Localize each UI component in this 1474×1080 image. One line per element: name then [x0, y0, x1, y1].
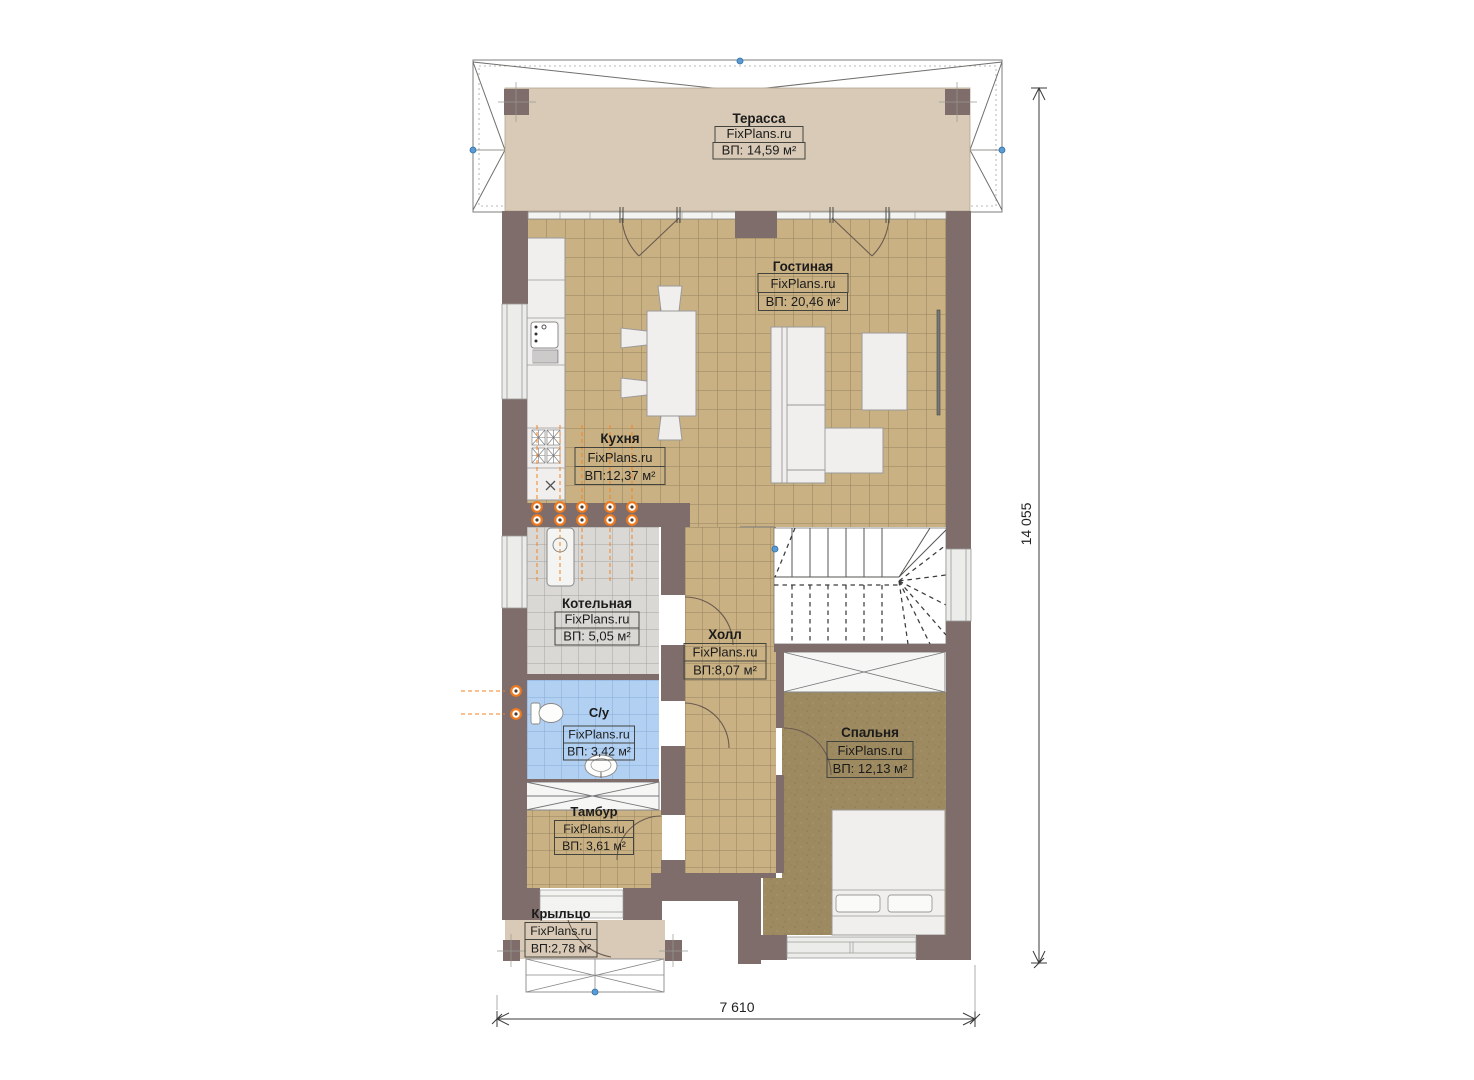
svg-text:Котельная: Котельная — [562, 596, 632, 611]
svg-text:14 055: 14 055 — [1018, 502, 1034, 545]
svg-text:FixPlans.ru: FixPlans.ru — [568, 728, 630, 742]
svg-text:FixPlans.ru: FixPlans.ru — [692, 645, 757, 660]
svg-text:ВП:8,07 м²: ВП:8,07 м² — [693, 663, 757, 678]
svg-text:ВП: 3,42 м²: ВП: 3,42 м² — [567, 745, 631, 759]
svg-text:7 610: 7 610 — [719, 999, 754, 1015]
svg-text:Гостиная: Гостиная — [773, 259, 834, 274]
svg-text:FixPlans.ru: FixPlans.ru — [563, 822, 625, 836]
svg-text:Тамбур: Тамбур — [570, 804, 617, 819]
svg-text:Холл: Холл — [708, 627, 742, 642]
svg-text:Спальня: Спальня — [841, 725, 899, 740]
svg-text:ВП: 20,46 м²: ВП: 20,46 м² — [766, 294, 841, 309]
svg-text:FixPlans.ru: FixPlans.ru — [837, 743, 902, 758]
svg-text:ВП: 5,05 м²: ВП: 5,05 м² — [563, 629, 631, 644]
svg-text:ВП: 14,59 м²: ВП: 14,59 м² — [722, 143, 797, 158]
svg-text:FixPlans.ru: FixPlans.ru — [726, 126, 791, 141]
svg-text:Крыльцо: Крыльцо — [531, 906, 590, 921]
svg-text:ВП:12,37 м²: ВП:12,37 м² — [584, 468, 656, 483]
svg-text:ВП: 3,61 м²: ВП: 3,61 м² — [562, 839, 626, 853]
svg-text:FixPlans.ru: FixPlans.ru — [770, 276, 835, 291]
svg-text:Кухня: Кухня — [600, 431, 639, 446]
svg-text:ВП: 12,13 м²: ВП: 12,13 м² — [833, 761, 908, 776]
svg-text:С/у: С/у — [589, 705, 610, 720]
svg-text:FixPlans.ru: FixPlans.ru — [587, 450, 652, 465]
svg-text:FixPlans.ru: FixPlans.ru — [530, 924, 592, 938]
svg-text:FixPlans.ru: FixPlans.ru — [564, 612, 629, 627]
svg-text:ВП:2,78 м²: ВП:2,78 м² — [531, 942, 591, 956]
svg-text:Терасса: Терасса — [732, 111, 786, 126]
